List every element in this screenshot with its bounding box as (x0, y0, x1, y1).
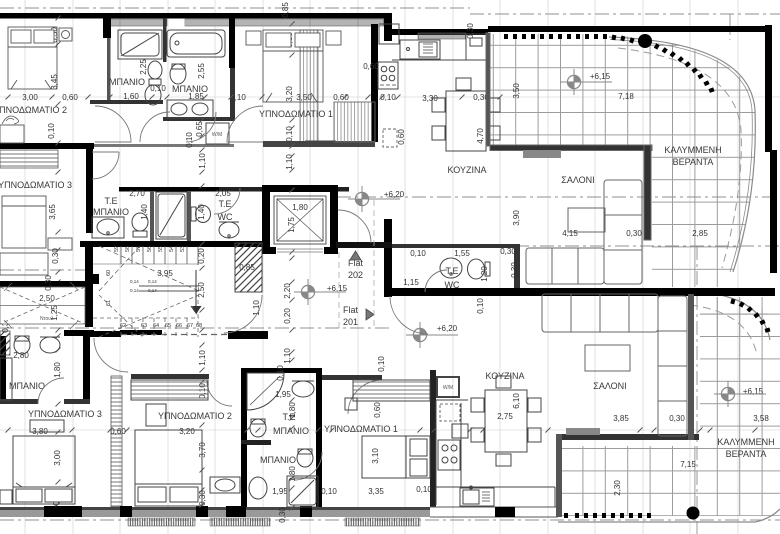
svg-text:55: 55 (158, 246, 164, 252)
svg-text:0,30: 0,30 (500, 247, 516, 256)
svg-text:ΜΠΑΝΙΟ: ΜΠΑΝΙΟ (93, 207, 129, 217)
svg-text:0,60: 0,60 (62, 93, 78, 102)
svg-text:ΥΠΝΟΔΩΜΑΤΙΟ 3: ΥΠΝΟΔΩΜΑΤΙΟ 3 (0, 180, 72, 190)
svg-text:1,15: 1,15 (403, 278, 419, 287)
svg-text:ΣΑΛΟΝΙ: ΣΑΛΟΝΙ (561, 175, 594, 185)
svg-text:Τ.Ε: Τ.Ε (218, 199, 231, 209)
svg-text:0,14: 0,14 (148, 288, 157, 293)
svg-text:0,10: 0,10 (416, 485, 432, 494)
svg-text:56: 56 (147, 246, 153, 252)
svg-text:0,30: 0,30 (278, 507, 287, 523)
svg-text:202: 202 (348, 270, 363, 280)
svg-text:+6,20: +6,20 (384, 190, 405, 199)
svg-text:0,65: 0,65 (195, 121, 204, 137)
svg-text:ΥΠΝΟΔΩΜΑΤΙΟ 2: ΥΠΝΟΔΩΜΑΤΙΟ 2 (0, 105, 67, 115)
svg-text:0,10: 0,10 (410, 249, 426, 258)
svg-text:3,65: 3,65 (48, 204, 57, 220)
svg-text:0,10: 0,10 (230, 93, 246, 102)
svg-text:3,35: 3,35 (368, 487, 384, 496)
svg-text:W/M: W/M (212, 132, 222, 138)
svg-text:0,30: 0,30 (510, 262, 519, 278)
svg-text:0,10: 0,10 (285, 126, 294, 142)
svg-text:WC: WC (445, 280, 460, 290)
svg-text:6,10: 6,10 (512, 393, 521, 409)
svg-text:Flat: Flat (343, 305, 359, 315)
svg-text:0,10: 0,10 (47, 123, 56, 139)
svg-text:54: 54 (169, 246, 175, 252)
svg-text:2,05: 2,05 (215, 189, 231, 198)
svg-text:ΒΕΡΑΝΤΑ: ΒΕΡΑΝΤΑ (673, 157, 714, 167)
svg-text:ΜΠΑΝΙΟ: ΜΠΑΝΙΟ (9, 381, 45, 391)
svg-text:0,30: 0,30 (626, 229, 642, 238)
svg-text:1,95: 1,95 (272, 487, 288, 496)
svg-text:3,85: 3,85 (613, 414, 629, 423)
svg-text:2,85: 2,85 (692, 229, 708, 238)
svg-text:0,60: 0,60 (110, 427, 126, 436)
svg-text:0,10: 0,10 (380, 93, 396, 102)
svg-text:ΒΕΡΑΝΤΑ: ΒΕΡΑΝΤΑ (726, 449, 767, 459)
svg-text:1,80: 1,80 (53, 362, 62, 378)
svg-text:+6,20: +6,20 (437, 324, 458, 333)
svg-text:67: 67 (187, 323, 193, 329)
svg-text:53: 53 (180, 246, 186, 252)
svg-text:0,14: 0,14 (130, 288, 139, 293)
svg-text:3,20: 3,20 (285, 86, 294, 102)
svg-text:58: 58 (125, 246, 131, 252)
svg-text:ΣΑΛΟΝΙ: ΣΑΛΟΝΙ (593, 381, 626, 391)
svg-text:1,40: 1,40 (140, 204, 149, 220)
svg-text:3,10: 3,10 (371, 448, 380, 464)
svg-text:7,18: 7,18 (618, 92, 634, 101)
svg-text:59: 59 (114, 246, 120, 252)
svg-text:0,10: 0,10 (185, 132, 194, 148)
svg-text:0,30: 0,30 (669, 414, 685, 423)
svg-text:ΥΠΝΟΔΩΜΑΤΙΟ 3: ΥΠΝΟΔΩΜΑΤΙΟ 3 (28, 409, 102, 419)
svg-text:ΥΠΝΟΔΩΜΑΤΙΟ 1: ΥΠΝΟΔΩΜΑΤΙΟ 1 (324, 424, 398, 434)
svg-text:4,15: 4,15 (562, 229, 578, 238)
svg-text:66: 66 (176, 323, 182, 329)
svg-text:3,50: 3,50 (512, 83, 521, 99)
svg-text:0,14: 0,14 (130, 279, 139, 284)
svg-text:W/M: W/M (443, 385, 453, 391)
svg-text:ΚΑΛΥΜΜΕΝΗ: ΚΑΛΥΜΜΕΝΗ (664, 145, 721, 155)
svg-text:2,55: 2,55 (197, 63, 206, 79)
svg-text:1,55: 1,55 (454, 249, 470, 258)
svg-text:Τ.Ε: Τ.Ε (104, 196, 117, 206)
svg-text:ΥΠΝΟΔΩΜΑΤΙΟ 1: ΥΠΝΟΔΩΜΑΤΙΟ 1 (259, 109, 333, 119)
svg-text:0,20: 0,20 (283, 308, 292, 324)
svg-text:64: 64 (153, 323, 159, 329)
svg-text:60: 60 (106, 270, 112, 276)
svg-text:0,60: 0,60 (373, 402, 382, 418)
svg-text:63: 63 (141, 323, 147, 329)
svg-text:0,10: 0,10 (476, 298, 485, 314)
svg-text:1,80: 1,80 (288, 402, 297, 418)
svg-text:0,10: 0,10 (321, 487, 337, 496)
svg-text:0,30: 0,30 (466, 23, 475, 39)
svg-text:ΜΠΑΝΙΟ: ΜΠΑΝΙΟ (273, 426, 309, 436)
svg-text:3,45: 3,45 (50, 74, 59, 90)
svg-text:ΜΠΑΝΙΟ: ΜΠΑΝΙΟ (260, 455, 296, 465)
svg-text:65: 65 (165, 323, 171, 329)
svg-text:0,85: 0,85 (281, 2, 290, 18)
svg-text:3,50: 3,50 (296, 93, 312, 102)
svg-text:3,20: 3,20 (179, 427, 195, 436)
svg-text:1,80: 1,80 (292, 203, 308, 212)
svg-text:1,10: 1,10 (198, 350, 207, 366)
svg-text:0,60: 0,60 (363, 62, 379, 71)
svg-text:2,70: 2,70 (129, 189, 145, 198)
svg-text:3,90: 3,90 (512, 210, 521, 226)
svg-text:61: 61 (106, 300, 112, 306)
svg-text:3,00: 3,00 (53, 450, 62, 466)
svg-text:ΚΟΥΖΙΝΑ: ΚΟΥΖΙΝΑ (448, 165, 487, 175)
svg-text:0,14: 0,14 (148, 279, 157, 284)
svg-text:201: 201 (343, 317, 358, 327)
svg-text:0,60: 0,60 (333, 93, 349, 102)
svg-text:+6,15: +6,15 (743, 387, 764, 396)
svg-text:0,60: 0,60 (397, 129, 406, 145)
svg-text:3,00: 3,00 (22, 93, 38, 102)
svg-text:4,70: 4,70 (476, 128, 485, 144)
svg-text:2,50: 2,50 (39, 294, 55, 303)
svg-text:0,30: 0,30 (44, 275, 53, 291)
svg-text:1,10: 1,10 (285, 154, 294, 170)
svg-text:ΥΠΝΟΔΩΜΑΤΙΟ 2: ΥΠΝΟΔΩΜΑΤΙΟ 2 (158, 411, 232, 421)
svg-text:1,10: 1,10 (198, 153, 207, 169)
svg-text:3,58: 3,58 (753, 414, 769, 423)
svg-text:2,25: 2,25 (139, 59, 148, 75)
svg-text:7,15: 7,15 (680, 460, 696, 469)
svg-text:2,20: 2,20 (283, 283, 292, 299)
svg-text:+6,15: +6,15 (590, 72, 611, 81)
svg-text:ΚΑΛΥΜΜΕΝΗ: ΚΑΛΥΜΜΕΝΗ (717, 437, 774, 447)
svg-text:ΜΠΑΝΙΟ: ΜΠΑΝΙΟ (109, 77, 145, 87)
svg-text:2,30: 2,30 (613, 480, 622, 496)
svg-text:62: 62 (120, 323, 126, 329)
svg-text:2,75: 2,75 (497, 412, 513, 421)
svg-text:Ντουλ.: Ντουλ. (40, 316, 55, 322)
svg-text:68: 68 (196, 323, 202, 329)
svg-text:1,60: 1,60 (123, 92, 139, 101)
svg-text:0,10: 0,10 (377, 356, 386, 372)
svg-text:57: 57 (136, 246, 142, 252)
